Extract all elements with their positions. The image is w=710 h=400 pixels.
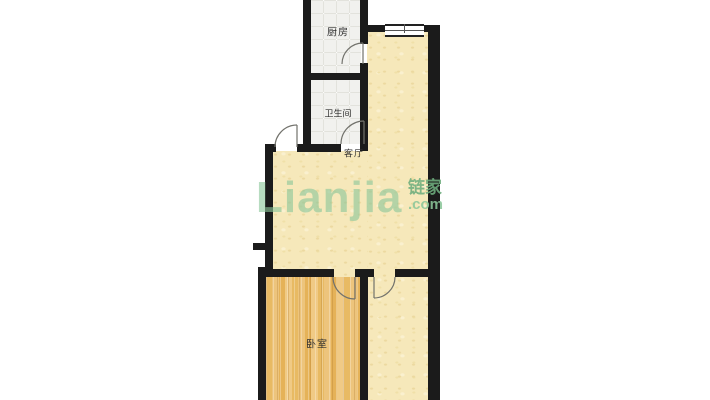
- floorplan-image: 厨房 卫生间 客厅 卧室 Lianjia 链家 .com: [0, 0, 710, 400]
- wall-kitchen-bathroom-divider: [303, 73, 368, 80]
- lianjia-cn-watermark: 链家 .com: [408, 179, 443, 212]
- wall-bedroom-left: [258, 267, 266, 400]
- entry-door-icon: [275, 125, 297, 147]
- wall-kitchen-right-upper: [360, 0, 368, 44]
- wall-living-top-left: [362, 25, 385, 32]
- kitchen-label: 厨房: [327, 24, 349, 39]
- wall-bedroom-top: [258, 269, 334, 277]
- lianjia-domain-text: .com: [408, 197, 443, 212]
- wall-door-post: [355, 269, 374, 277]
- window-tick: [404, 24, 405, 33]
- wall-bathroom-left: [303, 79, 311, 151]
- wall-bathroom-right: [360, 79, 368, 151]
- wall-entry-right: [297, 144, 341, 152]
- wall-bottom-divider: [360, 277, 368, 400]
- bathroom-label: 卫生间: [324, 107, 351, 120]
- second-room-floor: [368, 277, 428, 400]
- wall-kitchen-left: [303, 0, 311, 79]
- living-room-floor-right: [367, 32, 428, 277]
- lianjia-cn-text: 链家: [408, 179, 443, 196]
- living-room-label: 客厅: [344, 147, 364, 160]
- bedroom-label: 卧室: [306, 336, 328, 351]
- lianjia-watermark: Lianjia: [256, 176, 402, 220]
- wall-left-jog: [253, 243, 273, 250]
